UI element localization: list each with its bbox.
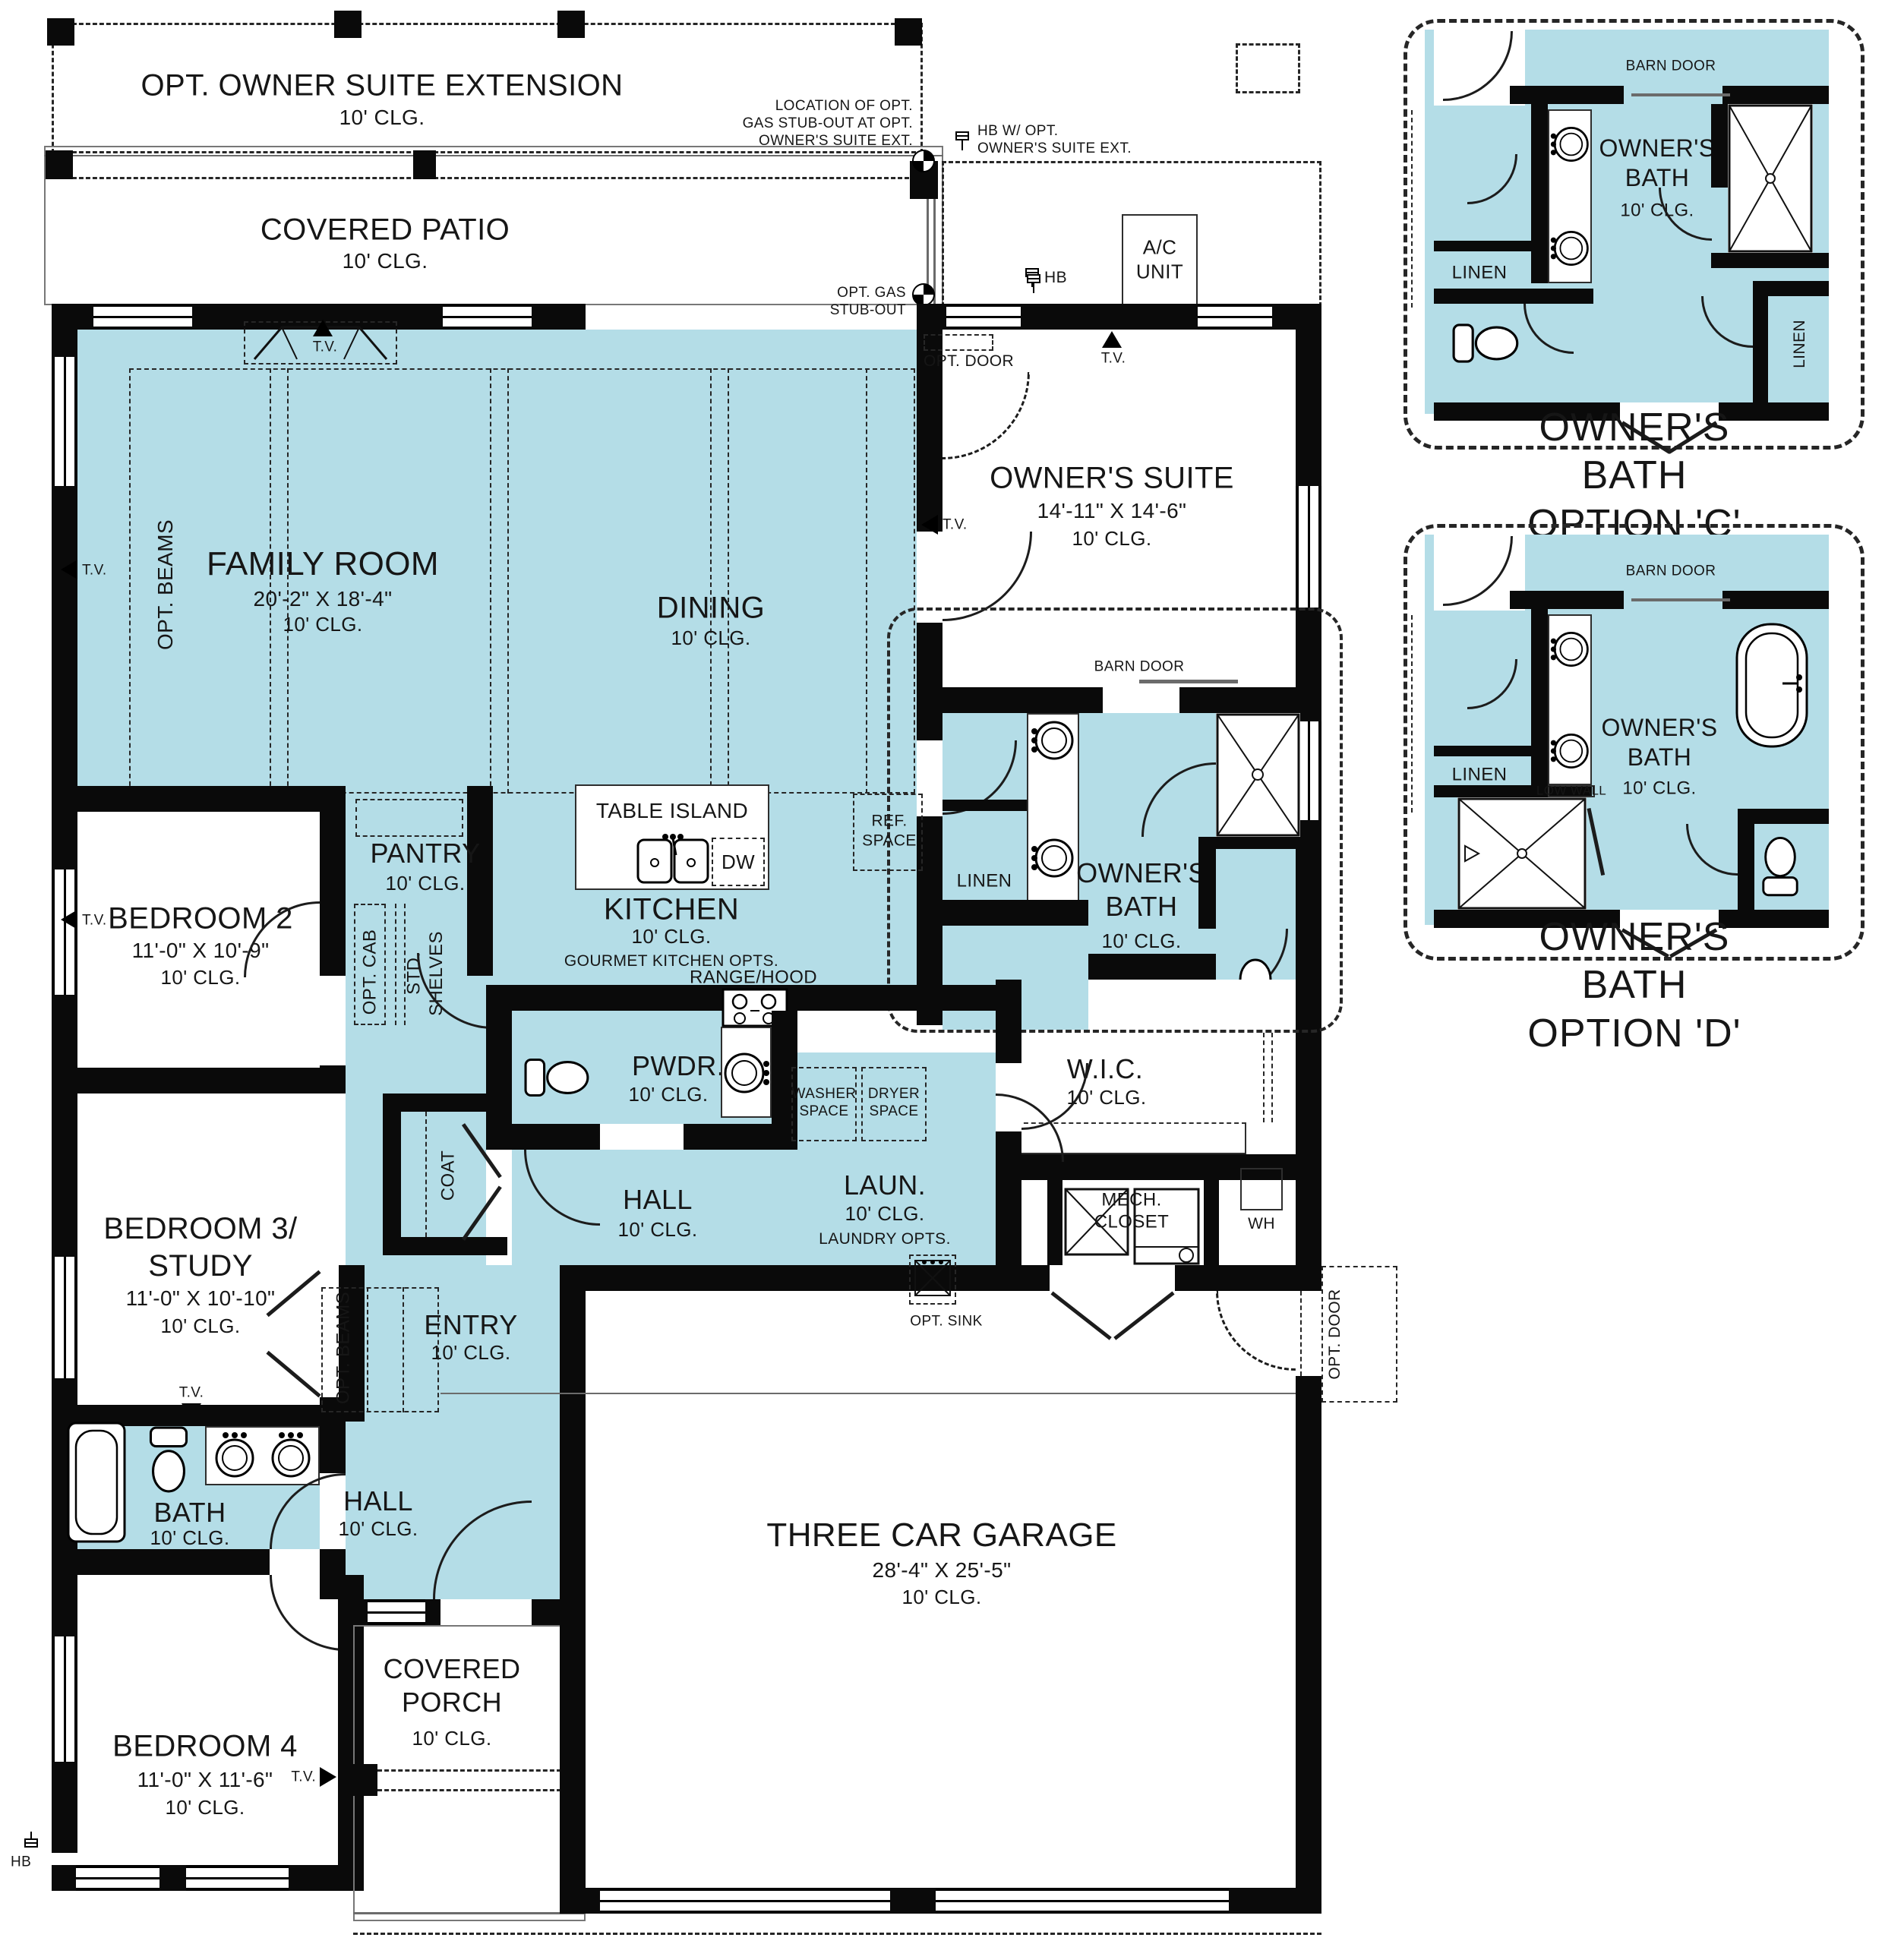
garage-dims: 28'-4" X 25'-5" [873,1557,1012,1583]
sink-icon [1549,629,1590,670]
wall [52,786,346,812]
post [895,18,922,46]
bath2-name: BATH [154,1496,226,1529]
bed3-dims: 11'-0" X 10'-10" [126,1286,276,1311]
pedestal-sink-icon [723,1049,770,1097]
mech-closet-label: MECH. CLOSET [1094,1189,1169,1234]
hose-bib-icon [23,1832,39,1851]
table-island-label: TABLE ISLAND [596,798,748,824]
pwdr-clg: 10' CLG. [629,1083,709,1107]
wh-box [1240,1168,1283,1210]
driveway-dash [353,1933,1321,1935]
wall [383,1093,401,1255]
porch-name: COVERED PORCH [384,1652,521,1719]
wall [1434,746,1531,756]
linen-label: LINEN [1790,320,1810,368]
opt-door-arc [1216,1291,1296,1371]
wh-label: WH [1248,1214,1275,1234]
shower-icon [1457,797,1587,910]
owners-bath-clg: 10' CLG. [1102,929,1182,954]
wall [1434,289,1593,304]
sink-icon [1549,124,1590,165]
dining-name: DINING [657,590,765,627]
window [93,304,192,330]
wall [383,1093,507,1112]
pwdr-name: PWDR. [632,1049,725,1083]
wall [1510,86,1624,104]
barn-door-label: BARN DOOR [1626,562,1716,579]
sink-icon [1030,835,1075,881]
bed3-name: BEDROOM 3/ STUDY [103,1210,297,1285]
shelf-line [395,904,397,1025]
toilet-icon [524,1054,592,1101]
wall [1088,954,1216,980]
bed4-name: BEDROOM 4 [112,1728,298,1766]
window [52,1257,77,1378]
sink-icon [267,1431,314,1479]
kitchen-sink-icon [636,834,709,887]
closet-dash [1411,615,1413,813]
hose-bib-icon [954,131,971,150]
porch-dash [377,1789,561,1791]
entry-clg: 10' CLG. [431,1341,511,1365]
tv-label: T.V. [82,911,107,929]
owners-bath-name: OWNER'S BATH [1076,857,1207,923]
opt-door-jamb [1300,1291,1302,1376]
opt-extension-title: OPT. OWNER SUITE EXTENSION [141,68,624,105]
bath2-clg: 10' CLG. [150,1526,230,1551]
opt-beams-label: OPT. BEAMS [153,519,178,650]
barn-door-line [1631,93,1730,96]
owners-bath-option-c: BARN DOOR OWNER'S BATH 10' CLG. LINEN LI… [1404,19,1865,450]
window [946,304,1021,330]
family-room-name: FAMILY ROOM [207,544,439,585]
sink-icon [1549,731,1590,772]
suite-clg: 10' CLG. [1072,527,1152,551]
bed4-dims: 11'-0" X 11'-6" [137,1767,273,1793]
suite-dims: 14'-11" X 14'-6" [1037,498,1187,524]
porch-step-line [353,1912,586,1914]
wall [917,687,1103,713]
entry-beams-label: OPT. BEAMS [332,1292,354,1404]
coat-label: COAT [437,1150,459,1201]
garage-clg: 10' CLG. [902,1586,982,1610]
post [47,18,74,46]
dryer-label: DRYER SPACE [868,1085,920,1120]
door-opening [440,1599,532,1625]
garage-name: THREE CAR GARAGE [766,1515,1116,1556]
garage-door [600,1888,890,1914]
tv-label: T.V. [291,1768,316,1785]
opt-door-arc [943,372,1030,459]
post [413,150,436,179]
porch-dash [377,1769,561,1772]
family-room-clg: 10' CLG. [283,613,363,637]
laun-clg: 10' CLG. [845,1202,925,1226]
post [334,11,362,38]
entry-name: ENTRY [424,1308,517,1342]
wall [1198,837,1216,929]
closet-dash [1411,110,1413,308]
door-leaf [266,1351,320,1398]
wall [486,1011,512,1150]
tv-label: T.V. [82,561,107,579]
door-opening [320,976,346,1065]
wall [1753,281,1829,296]
door-leaf [1113,1292,1174,1340]
hose-bib-icon [1025,273,1042,293]
sink-icon [1549,228,1590,269]
garage-door [936,1888,1229,1914]
tv-marker [921,515,938,535]
wall [560,1265,586,1914]
barn-door-line [1139,680,1238,683]
pantry-shelf [355,799,463,837]
opt-door-label: OPT. DOOR [1325,1289,1345,1379]
wall [1722,591,1829,609]
window [52,1636,77,1762]
inset-bath-name: OWNER'S BATH [1602,713,1718,772]
bed4-clg: 10' CLG. [166,1796,245,1820]
wall [943,800,1027,811]
wall [52,1068,320,1093]
opt-gas-note: OPT. GAS STUB-OUT [830,284,906,319]
wall [467,786,493,976]
dashed-square [1236,43,1300,93]
ac-unit-label: A/C UNIT [1136,235,1183,283]
patio-clg: 10' CLG. [343,248,428,274]
laun-name: LAUN. [844,1169,926,1202]
suite-name: OWNER'S SUITE [990,460,1234,497]
window [1198,304,1272,330]
tv-label: T.V. [179,1384,204,1401]
owners-bath-option-d: BARN DOOR OWNER'S BATH 10' CLG. LINEN LO… [1404,524,1865,961]
beam-line [710,368,712,794]
wic-floor [1088,980,1296,1030]
toilet-icon [146,1426,191,1494]
dw-label: DW [721,850,755,875]
window [186,1865,289,1891]
door-opening [1050,1265,1175,1291]
hb-label: HB [11,1853,31,1870]
gas-stub-icon [911,149,936,173]
window [52,869,77,995]
wall [1711,253,1829,268]
wall [1179,687,1321,713]
ref-space-label: REF. SPACE [862,811,917,850]
window [443,304,532,330]
beam-line [507,368,510,794]
dining-clg: 10' CLG. [671,626,751,651]
garage-line [440,1393,1296,1394]
barn-door-label: BARN DOOR [1094,658,1185,675]
toilet-icon [1759,834,1801,904]
porch-clg: 10' CLG. [412,1727,492,1751]
pantry-clg: 10' CLG. [386,872,466,896]
floor-plan: OPT. OWNER SUITE EXTENSION 10' CLG. COVE… [0,0,1904,1944]
barn-door-line [1631,598,1730,601]
tv-marker [1102,331,1122,348]
wall [1204,1180,1219,1265]
linen-label: LINEN [1452,763,1508,785]
tv-marker [61,560,77,579]
door-arc [270,1575,346,1651]
beam-line [490,368,492,794]
door-leaf [1050,1292,1111,1340]
linen-label: LINEN [1452,261,1508,283]
hb-ext-note: HB W/ OPT. OWNER'S SUITE EXT. [977,122,1132,157]
wall [1434,241,1531,251]
post [46,150,73,179]
wall [1711,104,1728,188]
wall [383,1237,507,1255]
hall-center-name: HALL [623,1183,693,1217]
hall-left-name: HALL [343,1485,413,1518]
beam-line [367,1287,369,1412]
washer-label: WASHER SPACE [791,1085,856,1120]
kitchen-name: KITCHEN [604,892,739,929]
hall-left-clg: 10' CLG. [339,1517,418,1542]
linen-label: LINEN [957,869,1012,892]
wall [1531,592,1548,785]
inset-bath-name: OWNER'S BATH [1599,134,1716,193]
door-opening [270,1549,320,1575]
wall [1738,809,1754,926]
tv-label: T.V. [1101,349,1126,367]
sink-icon [211,1431,258,1479]
toilet-icon [1452,320,1522,367]
opt-sink-label: OPT. SINK [910,1312,982,1330]
patio-title: COVERED PATIO [260,212,510,249]
wic-rod [1271,1033,1274,1122]
inset-d-title: OWNER'S BATH OPTION 'D' [1500,914,1770,1058]
window [76,1865,159,1891]
kitchen-clg: 10' CLG. [632,925,712,949]
tv-marker [61,910,77,929]
opt-door-dash [924,334,993,351]
family-room-dims: 20'-2" X 18'-4" [254,586,393,612]
beam-line [866,368,868,794]
post [353,1764,377,1796]
beam-line [403,1287,405,1412]
wic-rod [1263,1033,1265,1122]
wall [1531,87,1548,283]
tv-label: T.V. [313,338,338,355]
tv-marker [313,320,333,336]
wall [917,900,1088,926]
bed2-clg: 10' CLG. [161,966,241,990]
post [557,11,585,38]
wall [1753,281,1768,404]
hb-label: HB [1044,268,1067,288]
opt-cab-label: OPT. CAB [358,929,380,1015]
shower-icon [1728,104,1813,253]
shower-icon [1216,713,1300,837]
pantry-name: PANTRY [370,837,480,870]
barn-door-label: BARN DOOR [1626,57,1716,74]
opt-extension-clg: 10' CLG. [339,105,425,131]
door-opening [600,1124,684,1150]
location-note: LOCATION OF OPT. GAS STUB-OUT AT OPT. OW… [743,97,913,150]
window [368,1599,425,1625]
hall-center-clg: 10' CLG. [618,1218,698,1242]
wall [1510,591,1624,609]
inset-bath-clg: 10' CLG. [1622,777,1696,799]
opt-door-label: OPT. DOOR [924,352,1014,371]
tub-icon [1735,623,1808,748]
bed3-clg: 10' CLG. [161,1314,241,1339]
coat-rod [425,1112,428,1237]
tub-icon [67,1422,126,1543]
wall [1722,86,1829,104]
patio-edge-line [44,155,943,156]
tv-marker [320,1767,336,1787]
window [52,357,77,486]
laun-opts: LAUNDRY OPTS. [819,1229,951,1249]
tv-label: T.V. [943,516,968,533]
wall [1047,1180,1063,1265]
beam-line [728,368,730,794]
opt-sink-icon [914,1259,952,1297]
window [1296,486,1321,607]
sink-icon [1030,718,1075,763]
